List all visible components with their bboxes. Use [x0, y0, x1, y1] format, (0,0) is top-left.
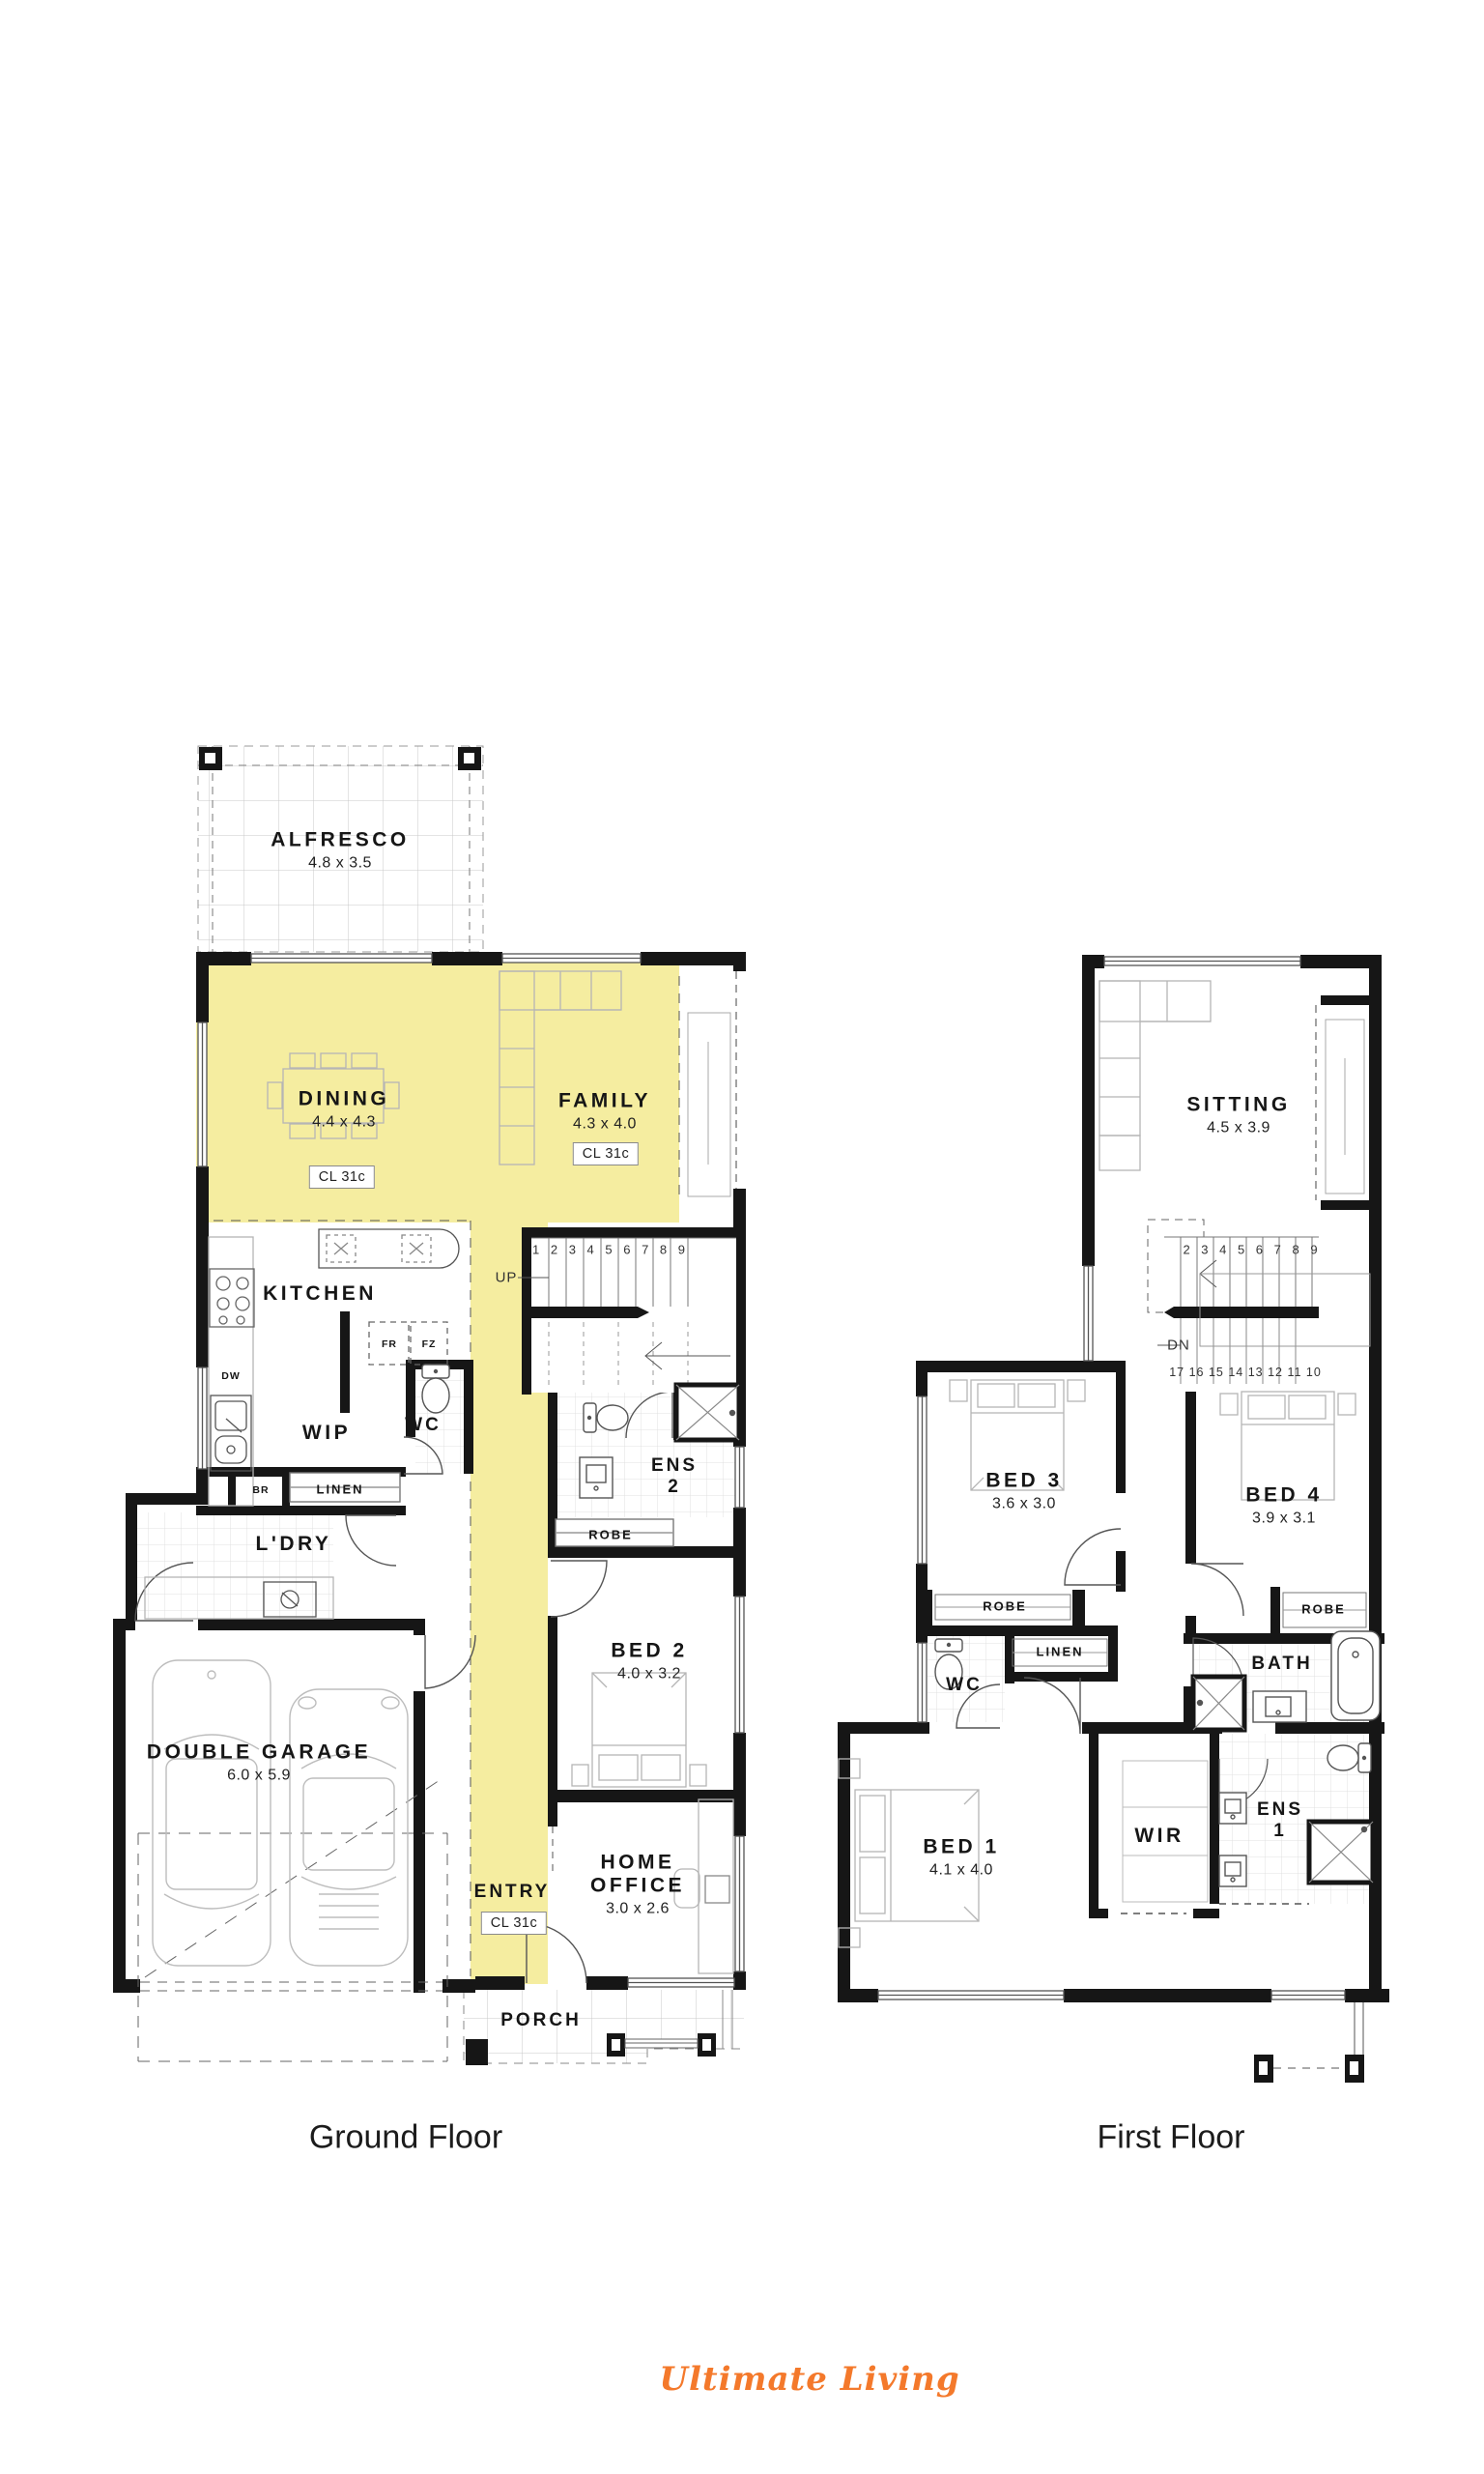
garage-door-driveway — [138, 1778, 447, 2061]
island-bench-icon — [319, 1229, 459, 1268]
ens2-vanity-icon — [580, 1457, 613, 1498]
room-label-linen-first: LINEN — [1037, 1646, 1084, 1660]
toilet-icon — [422, 1365, 449, 1413]
ens1-toilet-icon — [1327, 1743, 1371, 1772]
stairs-up-label: UP — [496, 1270, 518, 1286]
ens1-shower-icon — [1309, 1822, 1373, 1883]
room-label-dining: DINING 4.4 x 4.3 — [299, 1087, 390, 1131]
room-label-ldry: L'DRY — [256, 1533, 332, 1556]
ceiling-tag-entry: CL 31c — [481, 1912, 547, 1935]
caption-first-floor: First Floor — [1098, 2119, 1245, 2157]
stairs-down-label: DN — [1167, 1338, 1190, 1354]
garage-cars — [153, 1660, 408, 1966]
sitting-sofa-icon — [1099, 981, 1211, 1170]
room-label-robe4: ROBE — [1301, 1603, 1346, 1618]
room-label-wir: WIR — [1134, 1825, 1184, 1848]
family-cabinet — [688, 971, 736, 1196]
room-label-wip: WIP — [302, 1422, 351, 1445]
ceiling-tag-family: CL 31c — [573, 1142, 639, 1165]
room-label-sitting: SITTING 4.5 x 3.9 — [1186, 1093, 1290, 1136]
caption-ground-floor: Ground Floor — [309, 2119, 502, 2157]
floorplan-page: ALFRESCO 4.8 x 3.5 DINING 4.4 x 4.3 CL 3… — [0, 0, 1484, 2474]
room-label-robe-ground: ROBE — [588, 1529, 633, 1543]
stairs-up — [518, 1238, 736, 1393]
room-label-wc-first: WC — [946, 1675, 983, 1696]
bed2-icon — [572, 1673, 706, 1787]
ens2-shower-icon — [676, 1385, 739, 1440]
room-label-garage: DOUBLE GARAGE 6.0 x 5.9 — [147, 1740, 371, 1784]
room-label-porch: PORCH — [500, 2010, 582, 2031]
first-porch-marks — [1254, 2002, 1364, 2083]
room-label-alfresco: ALFRESCO 4.8 x 3.5 — [271, 828, 410, 872]
car-icon — [153, 1660, 271, 1966]
room-label-bed3: BED 3 3.6 x 3.0 — [985, 1469, 1062, 1512]
appliance-label-fr: FR — [382, 1338, 397, 1350]
room-label-kitchen: KITCHEN — [263, 1282, 377, 1306]
stairs-up-numbers: 1 2 3 4 5 6 7 8 9 — [532, 1243, 689, 1257]
bath-shower-icon — [1193, 1677, 1244, 1730]
room-label-home-office: HOME OFFICE 3.0 x 2.6 — [590, 1851, 685, 1917]
appliance-label-dw: DW — [221, 1370, 241, 1382]
cooktop-icon — [210, 1269, 254, 1327]
room-label-ens2: ENS 2 — [651, 1455, 698, 1498]
room-label-wc: WC — [405, 1415, 442, 1436]
room-label-bed1: BED 1 4.1 x 4.0 — [923, 1835, 999, 1879]
bath-vanity-icon — [1253, 1691, 1306, 1722]
room-label-ens1: ENS 1 — [1257, 1799, 1303, 1842]
room-label-family: FAMILY 4.3 x 4.0 — [558, 1089, 651, 1133]
sitting-cabinet — [1316, 1005, 1364, 1200]
room-label-robe3: ROBE — [983, 1600, 1027, 1615]
room-label-br: BR — [252, 1484, 269, 1496]
car-icon-2 — [290, 1689, 408, 1966]
room-label-bed2: BED 2 4.0 x 3.2 — [611, 1639, 687, 1683]
ens2-toilet-icon — [584, 1403, 628, 1432]
room-label-bed4: BED 4 3.9 x 3.1 — [1245, 1483, 1322, 1527]
stairs-down-numbers-top: 2 3 4 5 6 7 8 9 — [1183, 1243, 1321, 1257]
floorplan-drawing — [0, 0, 1484, 2474]
room-label-linen-ground: LINEN — [317, 1483, 364, 1498]
room-label-entry: ENTRY — [474, 1882, 551, 1903]
appliance-label-fz: FZ — [422, 1338, 437, 1350]
bathtub-icon — [1331, 1631, 1380, 1720]
ceiling-tag-dining: CL 31c — [309, 1165, 375, 1189]
room-label-bath: BATH — [1251, 1654, 1312, 1675]
brand-logo: Ultimate Living — [659, 2360, 959, 2399]
stairs-down-numbers-bottom: 17 16 15 14 13 12 11 10 — [1169, 1366, 1322, 1379]
sink-icon — [211, 1395, 251, 1471]
